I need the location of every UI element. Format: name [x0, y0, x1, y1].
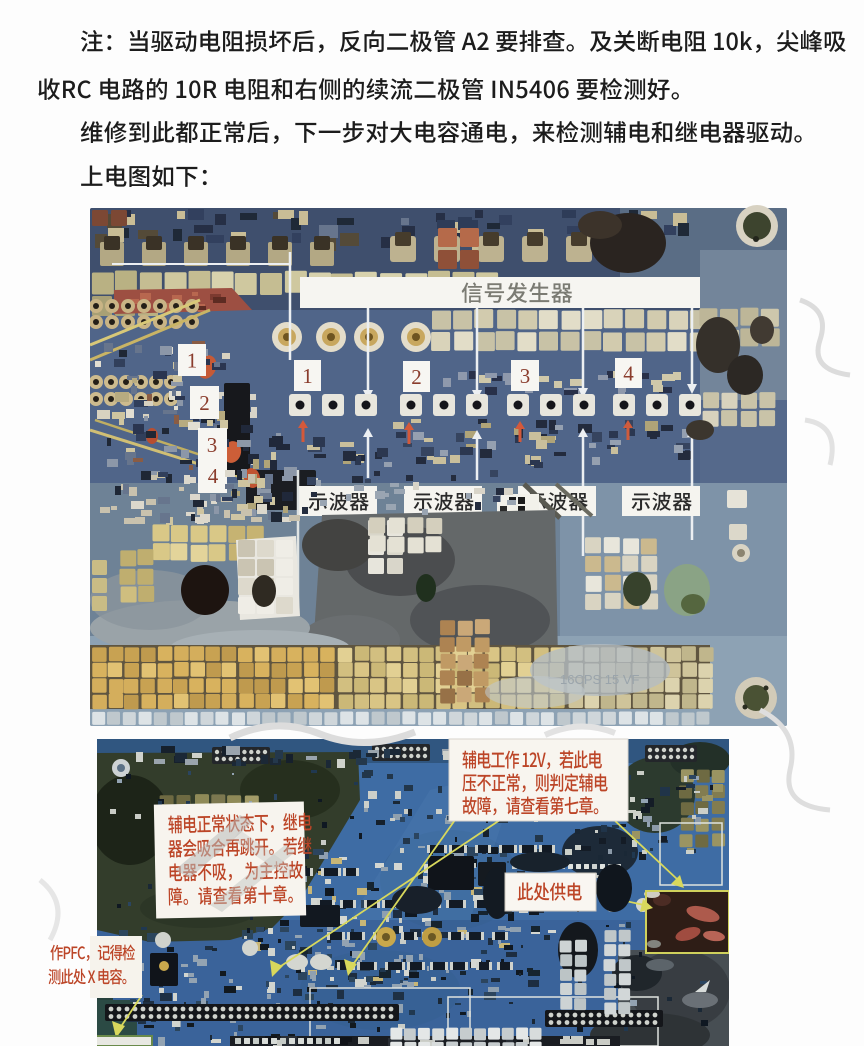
svg-text:4: 4: [208, 464, 219, 488]
svg-text:3: 3: [207, 433, 218, 457]
svg-text:4: 4: [623, 362, 634, 386]
svg-text:2: 2: [199, 391, 210, 415]
svg-text:3: 3: [520, 364, 531, 388]
svg-text:16CPS 15 VF: 16CPS 15 VF: [560, 672, 640, 687]
svg-text:2: 2: [411, 365, 422, 389]
svg-text:1: 1: [302, 364, 313, 388]
svg-text:1: 1: [187, 349, 198, 373]
